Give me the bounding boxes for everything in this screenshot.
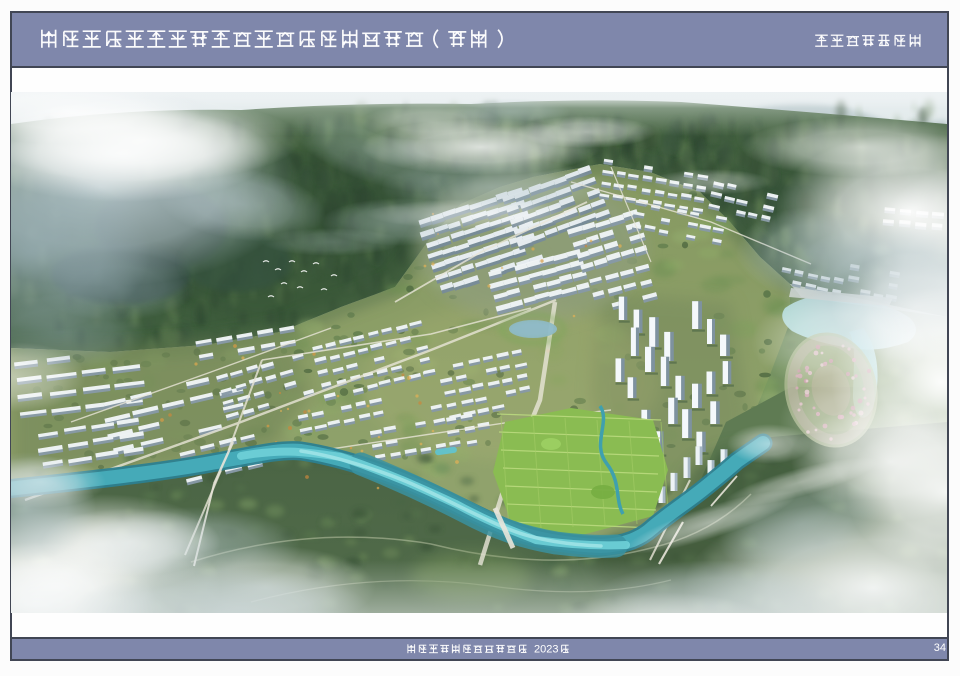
svg-text:2023: 2023 <box>534 644 558 656</box>
